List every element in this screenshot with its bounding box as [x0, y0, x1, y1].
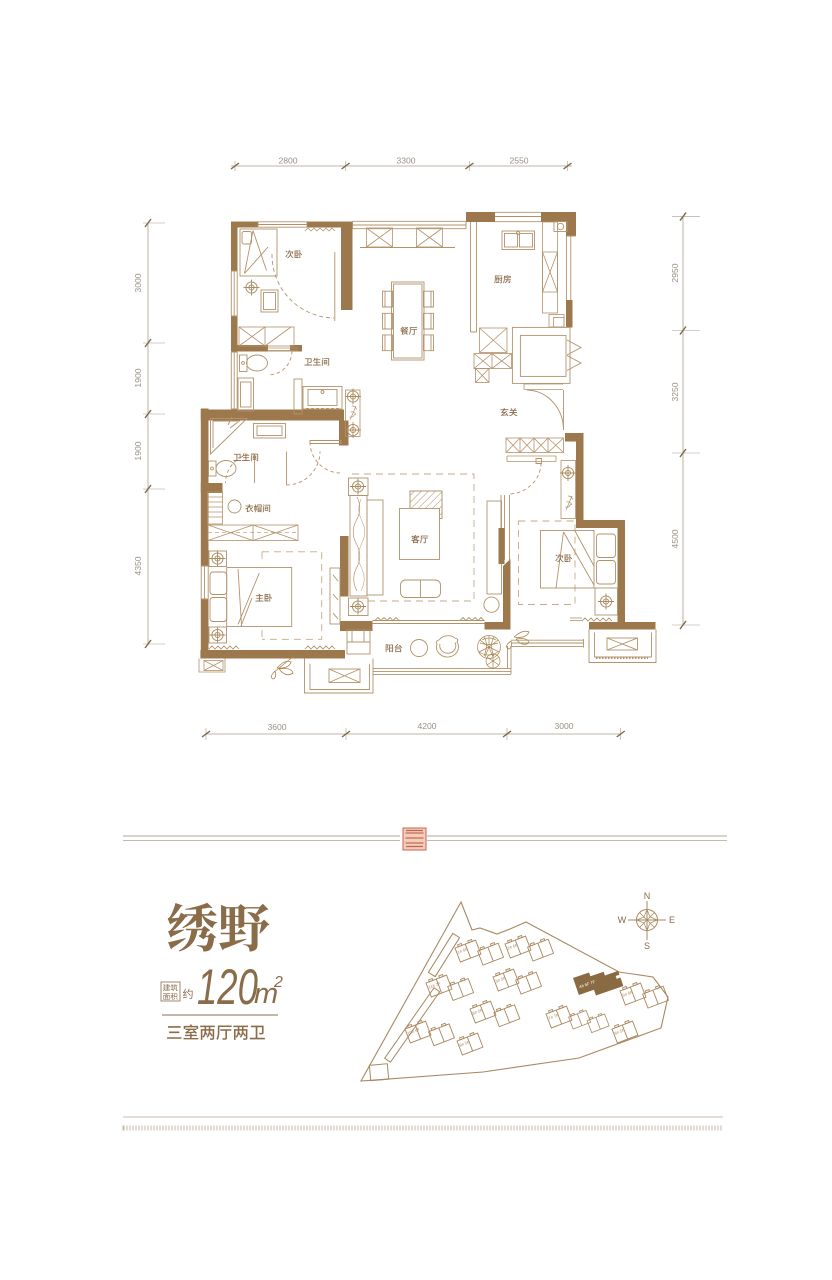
- svg-text:E: E: [669, 915, 675, 925]
- svg-text:3600: 3600: [267, 722, 286, 732]
- svg-text:120: 120: [197, 959, 258, 1015]
- svg-text:2800: 2800: [278, 156, 297, 166]
- svg-text:4350: 4350: [133, 556, 143, 575]
- svg-text:W: W: [618, 915, 627, 925]
- svg-text:3000: 3000: [554, 721, 573, 731]
- svg-text:2950: 2950: [670, 263, 680, 282]
- svg-text:4500: 4500: [670, 529, 680, 548]
- svg-text:1900: 1900: [133, 368, 143, 387]
- svg-text:3000: 3000: [133, 273, 143, 292]
- svg-text:3250: 3250: [670, 382, 680, 401]
- svg-text:3300: 3300: [396, 156, 415, 166]
- svg-text:2550: 2550: [509, 156, 528, 166]
- svg-text:1900: 1900: [133, 441, 143, 460]
- svg-text:N: N: [644, 891, 651, 901]
- svg-text:2: 2: [273, 974, 283, 991]
- svg-text:4200: 4200: [417, 721, 436, 731]
- svg-text:S: S: [644, 941, 650, 951]
